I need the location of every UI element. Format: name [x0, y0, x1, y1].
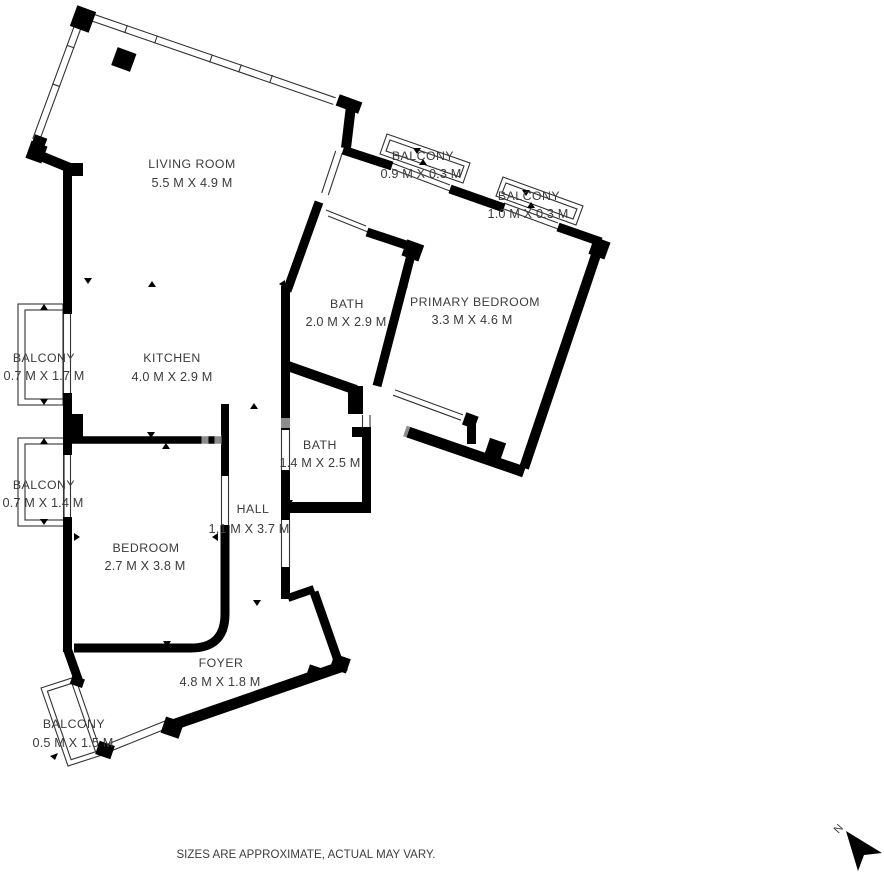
svg-text:SIZES ARE APPROXIMATE, ACTUAL: SIZES ARE APPROXIMATE, ACTUAL MAY VARY.	[176, 849, 435, 861]
svg-text:2.0 M X 2.9 M: 2.0 M X 2.9 M	[306, 315, 387, 329]
svg-text:1.0 M X 0.3 M: 1.0 M X 0.3 M	[488, 207, 569, 221]
svg-text:1.4 M X 2.5 M: 1.4 M X 2.5 M	[280, 456, 361, 470]
svg-text:5.5 M X 4.9 M: 5.5 M X 4.9 M	[152, 176, 233, 190]
svg-text:4.0 M X 2.9 M: 4.0 M X 2.9 M	[132, 370, 213, 384]
svg-text:BEDROOM: BEDROOM	[112, 541, 179, 555]
svg-text:0.5 M X 1.5 M: 0.5 M X 1.5 M	[33, 736, 114, 750]
svg-text:BALCONY: BALCONY	[13, 351, 75, 365]
svg-text:KITCHEN: KITCHEN	[143, 351, 200, 365]
svg-text:0.7 M X 1.4 M: 0.7 M X 1.4 M	[3, 496, 84, 510]
svg-text:BALCONY: BALCONY	[498, 189, 560, 203]
svg-text:HALL: HALL	[237, 502, 270, 516]
svg-text:BATH: BATH	[303, 438, 337, 452]
svg-text:1.1 M X 3.7 M: 1.1 M X 3.7 M	[209, 522, 290, 536]
svg-text:BALCONY: BALCONY	[13, 478, 75, 492]
svg-text:LIVING ROOM: LIVING ROOM	[148, 157, 236, 171]
svg-text:2.7 M X 3.8 M: 2.7 M X 3.8 M	[105, 559, 186, 573]
svg-text:FOYER: FOYER	[199, 656, 244, 670]
svg-text:PRIMARY BEDROOM: PRIMARY BEDROOM	[410, 295, 540, 309]
svg-text:0.9 M X 0.3 M: 0.9 M X 0.3 M	[381, 167, 462, 181]
svg-text:3.3 M X 4.6 M: 3.3 M X 4.6 M	[432, 313, 513, 327]
svg-text:BALCONY: BALCONY	[392, 149, 454, 163]
svg-text:4.8 M X 1.8 M: 4.8 M X 1.8 M	[180, 675, 261, 689]
svg-text:BATH: BATH	[330, 297, 364, 311]
svg-text:BALCONY: BALCONY	[43, 717, 105, 731]
svg-text:0.7 M X 1.7 M: 0.7 M X 1.7 M	[4, 369, 85, 383]
